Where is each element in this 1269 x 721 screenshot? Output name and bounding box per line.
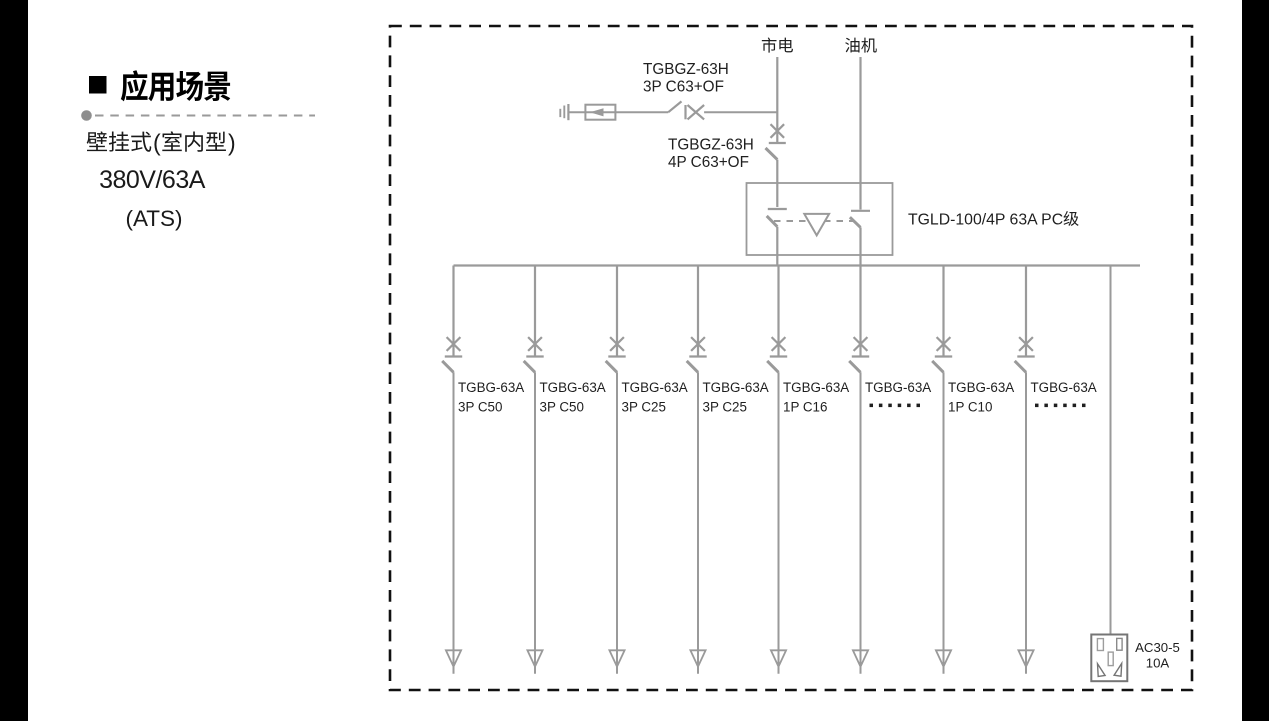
svg-text:TGBG-63A: TGBG-63A [458, 380, 524, 395]
svg-text:AC30-5: AC30-5 [1135, 640, 1180, 655]
svg-text:3P C25: 3P C25 [622, 400, 666, 415]
svg-text:TGBGZ-63H: TGBGZ-63H [643, 61, 729, 78]
svg-text:TGBG-63A: TGBG-63A [865, 380, 931, 395]
svg-text:1P C10: 1P C10 [948, 400, 992, 415]
svg-text:(: ( [153, 130, 161, 156]
svg-text:TGBGZ-63H: TGBGZ-63H [668, 136, 754, 153]
svg-text:TGBG-63A: TGBG-63A [1031, 380, 1097, 395]
svg-text:TGBG-63A: TGBG-63A [948, 380, 1014, 395]
svg-text:TGBG-63A: TGBG-63A [783, 380, 849, 395]
svg-text:TGBG-63A: TGBG-63A [540, 380, 606, 395]
svg-text:3P C25: 3P C25 [703, 400, 747, 415]
svg-text:3P C63+OF: 3P C63+OF [643, 78, 724, 95]
svg-text:TGBG-63A: TGBG-63A [622, 380, 688, 395]
svg-text:10A: 10A [1146, 656, 1170, 671]
svg-text:4P C63+OF: 4P C63+OF [668, 154, 749, 171]
svg-text:3P C50: 3P C50 [458, 400, 502, 415]
svg-text:TGBG-63A: TGBG-63A [703, 380, 769, 395]
svg-text:): ) [228, 130, 236, 156]
svg-text:(ATS): (ATS) [125, 206, 182, 231]
svg-text:TGLD-100/4P 63A PC: TGLD-100/4P 63A PC [908, 212, 1063, 229]
svg-text:3P C50: 3P C50 [540, 400, 584, 415]
svg-text:380V/63A: 380V/63A [99, 166, 206, 194]
svg-text:1P C16: 1P C16 [783, 400, 827, 415]
